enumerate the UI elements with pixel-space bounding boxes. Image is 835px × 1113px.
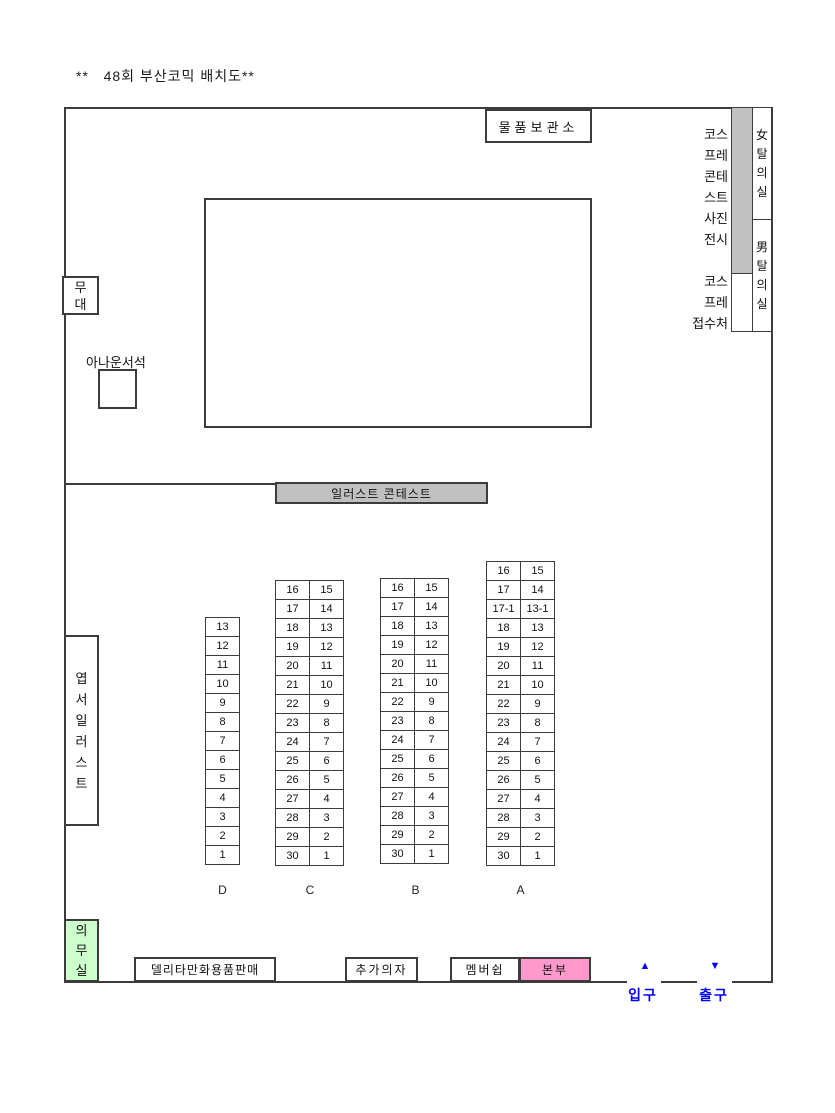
seat-cell: 21 bbox=[275, 675, 310, 695]
seat-column-b: 161718192021222324252627282930 151413121… bbox=[380, 578, 449, 864]
seat-cell: 12 bbox=[414, 635, 449, 655]
wall-top bbox=[64, 107, 773, 109]
seat-cell: 9 bbox=[309, 694, 344, 714]
seat-column-a: 161717-118192021222324252627282930 15141… bbox=[486, 561, 555, 866]
seat-cell: 6 bbox=[309, 751, 344, 771]
seat-cell: 26 bbox=[275, 770, 310, 790]
seat-cell: 21 bbox=[380, 673, 415, 693]
seat-cell: 10 bbox=[414, 673, 449, 693]
seat-cell: 9 bbox=[520, 694, 555, 714]
seat-cell: 10 bbox=[520, 675, 555, 695]
seat-cell: 1 bbox=[309, 846, 344, 866]
seat-cell: 15 bbox=[309, 580, 344, 600]
seat-cell: 6 bbox=[414, 749, 449, 769]
women-changing-room-label: 女 탈 의 실 bbox=[756, 126, 768, 202]
seat-cell: 28 bbox=[486, 808, 521, 828]
seat-cell: 8 bbox=[205, 712, 240, 732]
seat-cell: 4 bbox=[205, 788, 240, 808]
seat-cell: 4 bbox=[309, 789, 344, 809]
seat-cell: 25 bbox=[486, 751, 521, 771]
seat-column-c: 161718192021222324252627282930 151413121… bbox=[275, 580, 344, 866]
seat-column-a-label: A bbox=[486, 883, 555, 897]
seat-cell: 20 bbox=[380, 654, 415, 674]
seat-cell: 17-1 bbox=[486, 599, 521, 619]
membership-box: 멤버쉽 bbox=[450, 957, 520, 982]
seat-cell: 24 bbox=[380, 730, 415, 750]
stage-box: 무 대 bbox=[62, 276, 99, 315]
illust-contest-bar: 일러스트 콘테스트 bbox=[275, 482, 488, 504]
seat-cell: 19 bbox=[275, 637, 310, 657]
seat-cell: 5 bbox=[309, 770, 344, 790]
seat-column-c-label: C bbox=[275, 883, 345, 897]
seat-cell: 27 bbox=[380, 787, 415, 807]
extra-chairs-box: 추가의자 bbox=[345, 957, 418, 982]
membership-label: 멤버쉽 bbox=[465, 961, 504, 978]
seat-cell: 18 bbox=[486, 618, 521, 638]
seat-cell: 2 bbox=[414, 825, 449, 845]
seat-cell: 26 bbox=[486, 770, 521, 790]
seat-cell: 12 bbox=[205, 636, 240, 656]
exit-label: 출구 bbox=[696, 985, 732, 1005]
seat-cell: 22 bbox=[275, 694, 310, 714]
seat-cell: 18 bbox=[380, 616, 415, 636]
seat-cell: 7 bbox=[414, 730, 449, 750]
seat-cell: 6 bbox=[205, 750, 240, 770]
seat-column-d-label: D bbox=[205, 883, 240, 897]
seat-subcolumn: 151413121110987654321 bbox=[414, 578, 449, 864]
seat-column-d: 13121110987654321 bbox=[205, 617, 240, 865]
seat-cell: 13 bbox=[520, 618, 555, 638]
seat-cell: 15 bbox=[414, 578, 449, 598]
entrance-arrow-icon: ▲ bbox=[627, 960, 663, 972]
seat-cell: 25 bbox=[380, 749, 415, 769]
seat-cell: 29 bbox=[380, 825, 415, 845]
seat-subcolumn: 13121110987654321 bbox=[205, 617, 240, 865]
seat-cell: 30 bbox=[275, 846, 310, 866]
seat-cell: 24 bbox=[275, 732, 310, 752]
seat-cell: 13-1 bbox=[520, 599, 555, 619]
seat-cell: 10 bbox=[309, 675, 344, 695]
seat-cell: 11 bbox=[309, 656, 344, 676]
seat-cell: 13 bbox=[205, 617, 240, 637]
cosplay-corridor-bar bbox=[731, 107, 753, 332]
extra-chairs-label: 추가의자 bbox=[355, 961, 407, 978]
announcer-seat-box bbox=[98, 369, 137, 409]
delita-sales-box: 델리타만화용품판매 bbox=[134, 957, 276, 982]
seat-subcolumn: 151413-113121110987654321 bbox=[520, 561, 555, 866]
seat-cell: 5 bbox=[520, 770, 555, 790]
wall-left bbox=[64, 107, 66, 983]
seat-cell: 19 bbox=[380, 635, 415, 655]
seat-subcolumn: 161718192021222324252627282930 bbox=[275, 580, 310, 866]
seat-cell: 7 bbox=[520, 732, 555, 752]
entrance-label: 입구 bbox=[625, 985, 661, 1005]
seat-cell: 23 bbox=[380, 711, 415, 731]
seat-cell: 24 bbox=[486, 732, 521, 752]
cosplay-corridor-gray-section bbox=[732, 108, 752, 274]
seat-cell: 14 bbox=[414, 597, 449, 617]
seat-cell: 1 bbox=[520, 846, 555, 866]
seat-cell: 7 bbox=[309, 732, 344, 752]
seat-subcolumn: 161718192021222324252627282930 bbox=[380, 578, 415, 864]
seat-cell: 17 bbox=[275, 599, 310, 619]
seat-cell: 13 bbox=[309, 618, 344, 638]
seat-cell: 12 bbox=[309, 637, 344, 657]
seat-cell: 6 bbox=[520, 751, 555, 771]
seat-cell: 23 bbox=[275, 713, 310, 733]
seat-cell: 3 bbox=[520, 808, 555, 828]
seat-cell: 14 bbox=[309, 599, 344, 619]
seat-cell: 10 bbox=[205, 674, 240, 694]
main-hall-area bbox=[204, 198, 592, 428]
men-changing-room-label: 男 탈 의 실 bbox=[756, 238, 768, 314]
seat-cell: 3 bbox=[414, 806, 449, 826]
delita-sales-label: 델리타만화용품판매 bbox=[151, 961, 259, 978]
seat-cell: 29 bbox=[486, 827, 521, 847]
seat-cell: 7 bbox=[205, 731, 240, 751]
seat-cell: 28 bbox=[275, 808, 310, 828]
seat-cell: 13 bbox=[414, 616, 449, 636]
seat-cell: 26 bbox=[380, 768, 415, 788]
seat-cell: 17 bbox=[486, 580, 521, 600]
cosplay-exhibit-label: 코스 프레 콘테 스트 사진 전시 bbox=[683, 124, 728, 250]
men-changing-room: 男 탈 의 실 bbox=[752, 219, 772, 332]
seat-cell: 18 bbox=[275, 618, 310, 638]
seat-cell: 14 bbox=[520, 580, 555, 600]
seat-cell: 2 bbox=[309, 827, 344, 847]
wall-bottom-segment-middle bbox=[661, 981, 697, 983]
page-title: ** 48회 부산코믹 배치도** bbox=[76, 66, 255, 86]
first-aid-label: 의 무 실 bbox=[76, 921, 88, 981]
seat-cell: 5 bbox=[205, 769, 240, 789]
illust-contest-divider-line bbox=[64, 483, 276, 485]
storage-box: 물품보관소 bbox=[485, 109, 592, 143]
seat-cell: 2 bbox=[520, 827, 555, 847]
women-changing-room: 女 탈 의 실 bbox=[752, 107, 772, 220]
seat-cell: 16 bbox=[486, 561, 521, 581]
seat-cell: 28 bbox=[380, 806, 415, 826]
seat-cell: 4 bbox=[414, 787, 449, 807]
seat-cell: 2 bbox=[205, 826, 240, 846]
seat-cell: 21 bbox=[486, 675, 521, 695]
wall-bottom-segment-right bbox=[732, 981, 773, 983]
illust-contest-label: 일러스트 콘테스트 bbox=[331, 485, 432, 502]
exit-arrow-icon: ▼ bbox=[697, 960, 733, 972]
seat-cell: 22 bbox=[486, 694, 521, 714]
seat-cell: 16 bbox=[380, 578, 415, 598]
seat-cell: 5 bbox=[414, 768, 449, 788]
seat-cell: 3 bbox=[309, 808, 344, 828]
seat-cell: 19 bbox=[486, 637, 521, 657]
seat-cell: 30 bbox=[486, 846, 521, 866]
seat-subcolumn: 161717-118192021222324252627282930 bbox=[486, 561, 521, 866]
seat-cell: 8 bbox=[309, 713, 344, 733]
cosplay-reception-label: 코스 프레 접수처 bbox=[681, 271, 728, 334]
seat-cell: 9 bbox=[205, 693, 240, 713]
seat-cell: 11 bbox=[520, 656, 555, 676]
seat-cell: 29 bbox=[275, 827, 310, 847]
seat-cell: 17 bbox=[380, 597, 415, 617]
seat-cell: 11 bbox=[205, 655, 240, 675]
seat-cell: 8 bbox=[414, 711, 449, 731]
seat-cell: 12 bbox=[520, 637, 555, 657]
seat-cell: 3 bbox=[205, 807, 240, 827]
seat-cell: 1 bbox=[205, 845, 240, 865]
seat-cell: 16 bbox=[275, 580, 310, 600]
postcard-illust-label: 엽 서 일 러 스 트 bbox=[76, 668, 88, 794]
seat-cell: 15 bbox=[520, 561, 555, 581]
seat-cell: 22 bbox=[380, 692, 415, 712]
seat-cell: 23 bbox=[486, 713, 521, 733]
seat-cell: 25 bbox=[275, 751, 310, 771]
seat-cell: 4 bbox=[520, 789, 555, 809]
seat-cell: 30 bbox=[380, 844, 415, 864]
seat-column-b-label: B bbox=[380, 883, 451, 897]
first-aid-box: 의 무 실 bbox=[64, 919, 99, 982]
headquarters-label: 본부 bbox=[542, 961, 568, 978]
headquarters-box: 본부 bbox=[519, 957, 591, 982]
stage-label: 무 대 bbox=[75, 279, 87, 313]
seat-cell: 27 bbox=[275, 789, 310, 809]
seat-cell: 11 bbox=[414, 654, 449, 674]
storage-label: 물품보관소 bbox=[499, 117, 579, 136]
postcard-illust-box: 엽 서 일 러 스 트 bbox=[64, 635, 99, 826]
seat-cell: 20 bbox=[486, 656, 521, 676]
seat-cell: 20 bbox=[275, 656, 310, 676]
seat-cell: 27 bbox=[486, 789, 521, 809]
seat-cell: 1 bbox=[414, 844, 449, 864]
seat-cell: 8 bbox=[520, 713, 555, 733]
seat-subcolumn: 151413121110987654321 bbox=[309, 580, 344, 866]
seat-cell: 9 bbox=[414, 692, 449, 712]
